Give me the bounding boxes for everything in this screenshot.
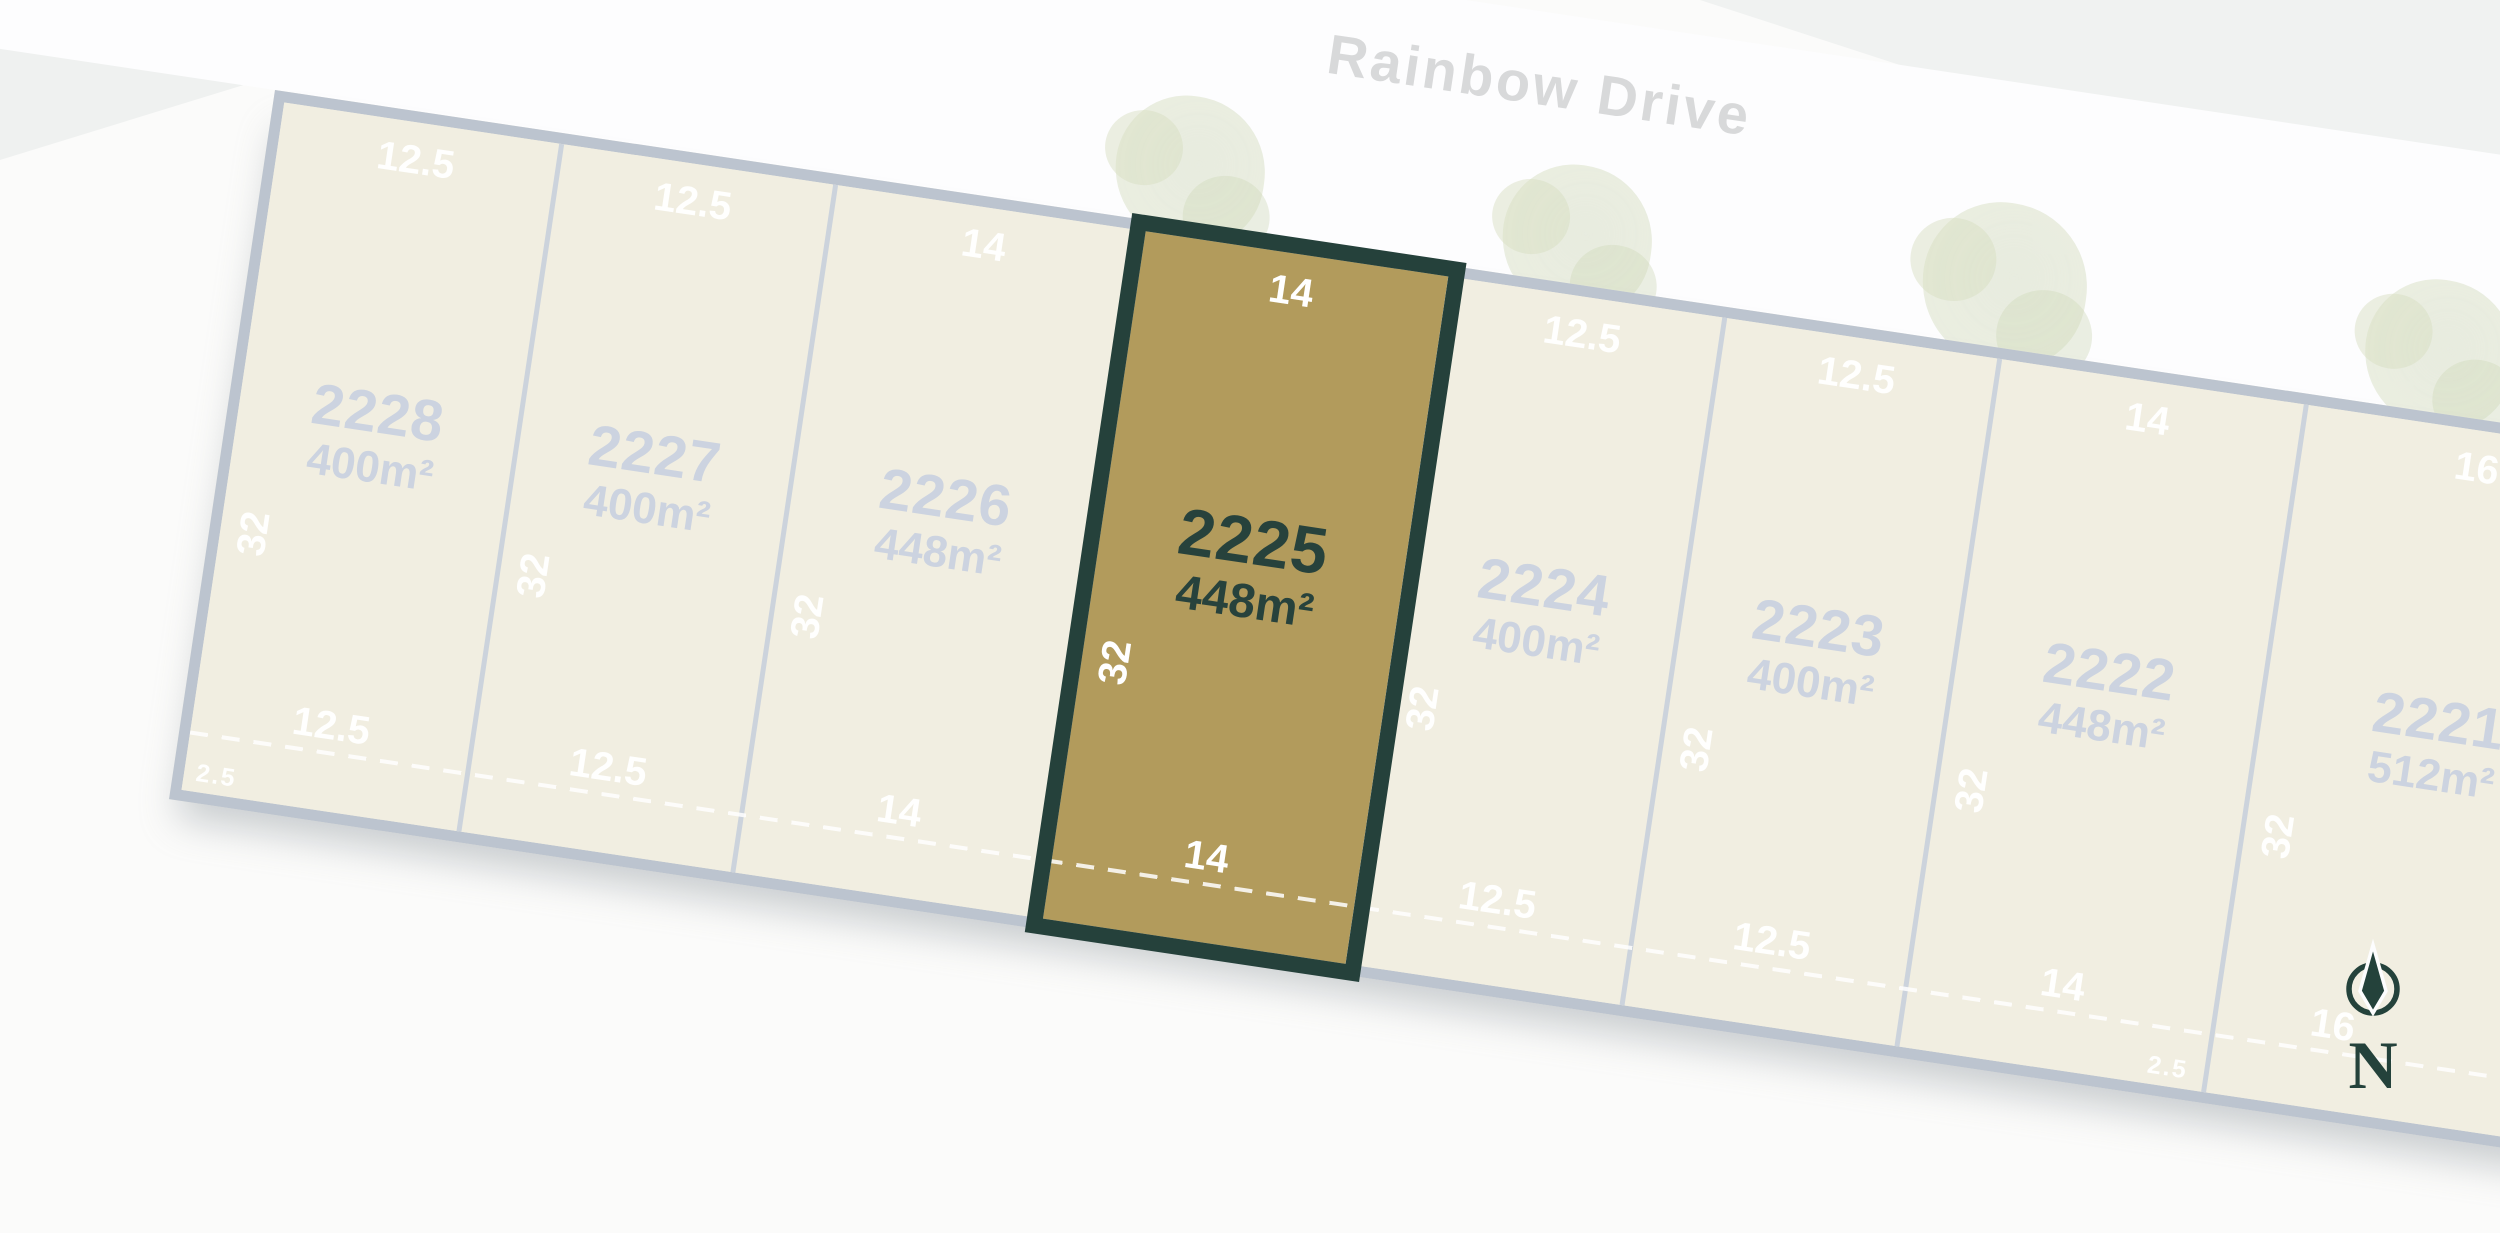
lot-label: 2226448m² — [783, 446, 1101, 598]
lot-frontage-dimension: 14 — [1136, 247, 1445, 337]
lot-frontage-dimension: 14 — [829, 201, 1138, 291]
lot-frontage-dimension: 14 — [1993, 375, 2302, 465]
lot-area: 448m² — [1090, 556, 1400, 650]
lot-frontage-dimension: 12.5 — [1444, 293, 1720, 378]
lot-depth-dimension: 32 — [1090, 637, 1141, 688]
lot-frontage-dimension: 12.5 — [555, 160, 831, 245]
north-compass: N — [2313, 933, 2433, 1099]
lot-number: 2227 — [516, 405, 794, 504]
lot-number: 2223 — [1680, 579, 1958, 678]
lot-frontage-dimension: 12.5 — [1718, 334, 1994, 419]
lot-number: 2221 — [2261, 666, 2500, 776]
lot-number: 2226 — [790, 446, 1101, 550]
lot-area: 448m² — [783, 508, 1092, 598]
lot-rear-dimension: 12.5 — [191, 684, 472, 770]
lot-number: 2222 — [1954, 620, 2265, 724]
lot-label: 2227400m² — [509, 405, 794, 552]
lot-area: 400m² — [229, 426, 510, 511]
lot-number: 2225 — [1098, 486, 1410, 598]
lot-rear-dimension: 12.5 — [470, 726, 746, 811]
lot-rear-dimension: 12.5 — [1359, 859, 1635, 944]
lot-area: 448m² — [1947, 682, 2256, 772]
lot-label: 2223400m² — [1672, 579, 1957, 726]
lot-label: 2225448m² — [1090, 486, 1410, 650]
lot-depth-dimension: 32 — [1672, 724, 1723, 775]
lot-depth-dimension: 32 — [508, 550, 559, 601]
lot-rear-dimension: 14 — [1052, 813, 1361, 903]
lot-label: 2224400m² — [1398, 538, 1683, 685]
lot-area: 400m² — [1672, 641, 1948, 726]
lot-area: 400m² — [1398, 600, 1674, 685]
lot-depth-dimension: 32 — [1397, 683, 1448, 734]
lot-rear-dimension: 12.5 — [1634, 900, 1910, 985]
north-compass-icon — [2318, 933, 2428, 1037]
lot-frontage-dimension: 12.5 — [275, 118, 556, 204]
lot-depth-dimension: 32 — [782, 591, 833, 642]
lot-label: 2221512m² — [2254, 666, 2500, 825]
lot-frontage-dimension: 16 — [2300, 421, 2500, 517]
lot-number: 2228 — [237, 363, 520, 463]
lot-rear-dimension: 14 — [745, 767, 1054, 857]
lot-depth-dimension: 32 — [229, 508, 280, 559]
lot-depth-dimension: 32 — [2254, 811, 2305, 862]
lot-depth-dimension: 32 — [1946, 765, 1997, 816]
lot-area: 512m² — [2254, 728, 2500, 824]
lot-area: 400m² — [509, 467, 785, 552]
lot-number: 2224 — [1405, 538, 1683, 637]
lot-label: 2222448m² — [1947, 620, 2265, 772]
lot-rear-dimension: 14 — [1908, 941, 2217, 1031]
north-label: N — [2313, 1031, 2433, 1099]
lot-label: 2228400m² — [229, 363, 519, 511]
